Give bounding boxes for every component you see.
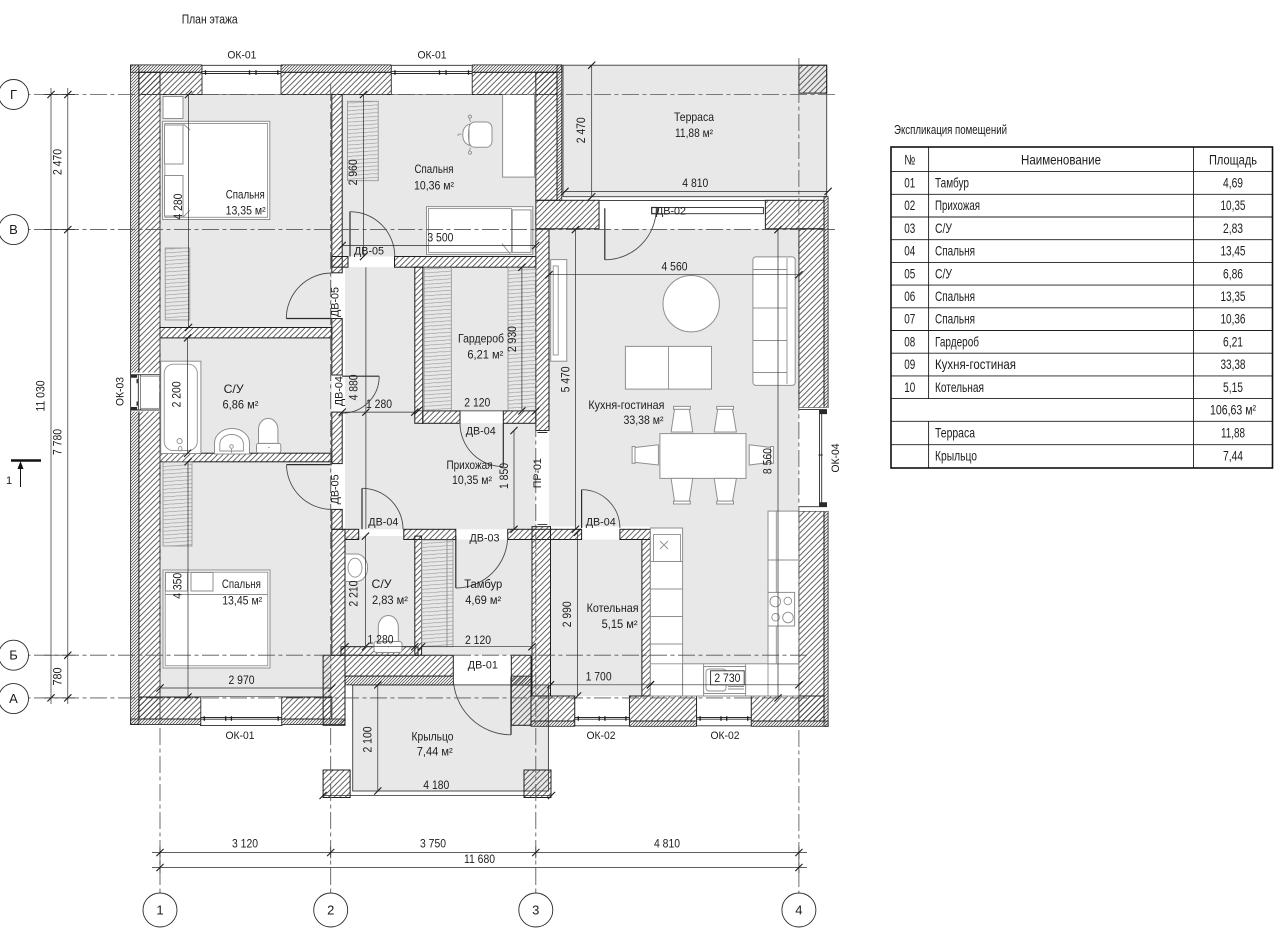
svg-text:Спальня: Спальня xyxy=(226,187,265,201)
svg-text:Терраса: Терраса xyxy=(935,424,975,440)
svg-text:Спальня: Спальня xyxy=(415,162,454,176)
svg-text:Крыльцо: Крыльцо xyxy=(412,729,454,743)
svg-text:02: 02 xyxy=(904,197,915,213)
svg-text:2 210: 2 210 xyxy=(349,581,361,607)
svg-text:С/У: С/У xyxy=(224,382,244,396)
svg-text:2,83: 2,83 xyxy=(1223,220,1243,236)
svg-text:2 990: 2 990 xyxy=(562,601,574,627)
svg-text:6,86 м²: 6,86 м² xyxy=(223,399,259,411)
svg-text:Котельная: Котельная xyxy=(587,601,639,615)
svg-text:Наименование: Наименование xyxy=(1021,151,1101,167)
svg-text:10,36 м²: 10,36 м² xyxy=(414,181,454,193)
svg-text:ОК-01: ОК-01 xyxy=(226,730,255,742)
svg-text:4,69: 4,69 xyxy=(1223,175,1243,191)
svg-text:1 700: 1 700 xyxy=(586,671,612,683)
svg-text:С/У: С/У xyxy=(935,265,952,281)
svg-text:Б: Б xyxy=(9,648,18,663)
svg-text:13,45: 13,45 xyxy=(1221,243,1246,259)
svg-text:5 470: 5 470 xyxy=(560,366,572,392)
svg-text:ДВ-05: ДВ-05 xyxy=(354,246,384,258)
svg-text:2 470: 2 470 xyxy=(53,149,65,175)
svg-text:106,63 м²: 106,63 м² xyxy=(1210,402,1256,418)
svg-text:ДВ-03: ДВ-03 xyxy=(470,533,500,545)
svg-text:2 960: 2 960 xyxy=(348,159,360,185)
svg-text:6,21: 6,21 xyxy=(1223,333,1243,349)
svg-text:4 180: 4 180 xyxy=(423,780,449,792)
svg-text:1 280: 1 280 xyxy=(368,634,394,646)
svg-text:01: 01 xyxy=(904,175,915,191)
svg-text:7,44 м²: 7,44 м² xyxy=(417,747,453,759)
svg-text:13,35 м²: 13,35 м² xyxy=(226,206,266,218)
svg-text:4 560: 4 560 xyxy=(662,262,688,274)
svg-text:Тамбур: Тамбур xyxy=(935,175,969,191)
svg-text:2 100: 2 100 xyxy=(362,727,374,753)
svg-text:С/У: С/У xyxy=(372,577,392,591)
svg-text:4 280: 4 280 xyxy=(173,194,185,220)
svg-text:ДВ-02: ДВ-02 xyxy=(656,205,686,217)
svg-text:8 560: 8 560 xyxy=(763,448,775,474)
svg-text:7,44: 7,44 xyxy=(1223,448,1243,464)
svg-text:Спальня: Спальня xyxy=(935,243,975,259)
svg-text:ДВ-05: ДВ-05 xyxy=(330,287,342,317)
svg-text:ОК-01: ОК-01 xyxy=(418,50,447,62)
svg-text:2 970: 2 970 xyxy=(229,675,255,687)
svg-text:ОК-02: ОК-02 xyxy=(711,730,740,742)
svg-text:33,38 м²: 33,38 м² xyxy=(624,415,664,427)
svg-text:3: 3 xyxy=(532,903,539,918)
svg-text:ДВ-05: ДВ-05 xyxy=(330,474,342,504)
svg-text:09: 09 xyxy=(904,356,915,372)
svg-text:3 500: 3 500 xyxy=(427,233,453,245)
svg-text:08: 08 xyxy=(904,333,915,349)
svg-text:Гардероб: Гардероб xyxy=(458,331,504,345)
svg-text:А: А xyxy=(9,691,18,706)
svg-text:2,83 м²: 2,83 м² xyxy=(372,595,408,607)
svg-text:ОК-02: ОК-02 xyxy=(587,730,616,742)
svg-text:2 930: 2 930 xyxy=(507,326,519,352)
svg-text:2 200: 2 200 xyxy=(172,381,184,407)
svg-text:1: 1 xyxy=(6,475,12,487)
svg-text:4 350: 4 350 xyxy=(173,573,185,599)
svg-text:ОК-03: ОК-03 xyxy=(115,377,127,406)
svg-text:1 850: 1 850 xyxy=(499,463,511,489)
svg-text:№: № xyxy=(904,151,915,167)
svg-text:33,38: 33,38 xyxy=(1221,356,1246,372)
svg-text:4 810: 4 810 xyxy=(682,178,708,190)
svg-text:Спальня: Спальня xyxy=(935,311,975,327)
svg-text:1: 1 xyxy=(156,903,163,918)
svg-text:780: 780 xyxy=(53,668,65,686)
svg-text:04: 04 xyxy=(904,243,915,259)
svg-text:11 030: 11 030 xyxy=(36,381,48,412)
svg-text:4 810: 4 810 xyxy=(654,839,680,851)
svg-text:2: 2 xyxy=(327,903,334,918)
svg-text:Крыльцо: Крыльцо xyxy=(935,448,977,464)
svg-text:Терраса: Терраса xyxy=(674,110,714,124)
svg-text:13,35: 13,35 xyxy=(1221,288,1246,304)
svg-text:ДВ-04: ДВ-04 xyxy=(368,517,398,529)
svg-text:06: 06 xyxy=(904,288,915,304)
svg-text:С/У: С/У xyxy=(935,220,952,236)
svg-text:ОК-01: ОК-01 xyxy=(227,50,256,62)
svg-text:Прихожая: Прихожая xyxy=(447,458,493,472)
svg-text:Гардероб: Гардероб xyxy=(935,333,979,349)
svg-text:3 120: 3 120 xyxy=(232,839,258,851)
svg-text:Тамбур: Тамбур xyxy=(464,577,502,591)
svg-text:Площадь: Площадь xyxy=(1209,151,1257,167)
svg-text:4 880: 4 880 xyxy=(349,374,361,400)
svg-text:05: 05 xyxy=(904,265,915,281)
svg-text:1 280: 1 280 xyxy=(366,399,392,411)
svg-text:3 750: 3 750 xyxy=(420,839,446,851)
svg-text:Экспликация помещений: Экспликация помещений xyxy=(894,123,1007,137)
svg-text:Спальня: Спальня xyxy=(935,288,975,304)
svg-text:11,88: 11,88 xyxy=(1221,424,1245,440)
svg-text:Прихожая: Прихожая xyxy=(935,197,980,213)
svg-text:10,36: 10,36 xyxy=(1221,311,1246,327)
svg-text:4: 4 xyxy=(795,903,802,918)
svg-text:ДВ-04: ДВ-04 xyxy=(466,426,496,438)
svg-text:ОК-04: ОК-04 xyxy=(830,444,842,473)
svg-text:Кухня-гостиная: Кухня-гостиная xyxy=(935,356,1016,372)
svg-text:План этажа: План этажа xyxy=(182,13,238,27)
svg-text:2 120: 2 120 xyxy=(464,398,490,410)
svg-text:2 470: 2 470 xyxy=(576,117,588,143)
svg-text:2 730: 2 730 xyxy=(714,673,740,685)
svg-text:7 780: 7 780 xyxy=(53,429,65,455)
svg-text:6,86: 6,86 xyxy=(1223,265,1243,281)
svg-text:ДВ-01: ДВ-01 xyxy=(468,660,498,672)
svg-text:ДВ-04: ДВ-04 xyxy=(334,376,346,406)
svg-text:2 120: 2 120 xyxy=(465,635,491,647)
svg-text:10,35 м²: 10,35 м² xyxy=(452,475,492,487)
svg-text:ПР-01: ПР-01 xyxy=(532,458,544,488)
svg-text:10: 10 xyxy=(904,379,915,395)
svg-text:Спальня: Спальня xyxy=(222,577,261,591)
svg-text:11,88 м²: 11,88 м² xyxy=(675,128,713,140)
svg-text:Котельная: Котельная xyxy=(935,379,984,395)
svg-text:6,21 м²: 6,21 м² xyxy=(467,350,503,362)
svg-text:4,69 м²: 4,69 м² xyxy=(465,595,501,607)
svg-text:Кухня-гостиная: Кухня-гостиная xyxy=(588,398,664,412)
svg-text:07: 07 xyxy=(904,311,915,327)
svg-text:5,15: 5,15 xyxy=(1223,379,1243,395)
svg-text:10,35: 10,35 xyxy=(1221,197,1246,213)
svg-text:11 680: 11 680 xyxy=(464,854,495,866)
svg-text:В: В xyxy=(9,222,18,237)
svg-text:Г: Г xyxy=(10,87,17,102)
svg-text:5,15 м²: 5,15 м² xyxy=(602,619,638,631)
svg-text:13,45 м²: 13,45 м² xyxy=(222,595,262,607)
svg-text:ДВ-04: ДВ-04 xyxy=(586,517,616,529)
svg-text:03: 03 xyxy=(904,220,915,236)
